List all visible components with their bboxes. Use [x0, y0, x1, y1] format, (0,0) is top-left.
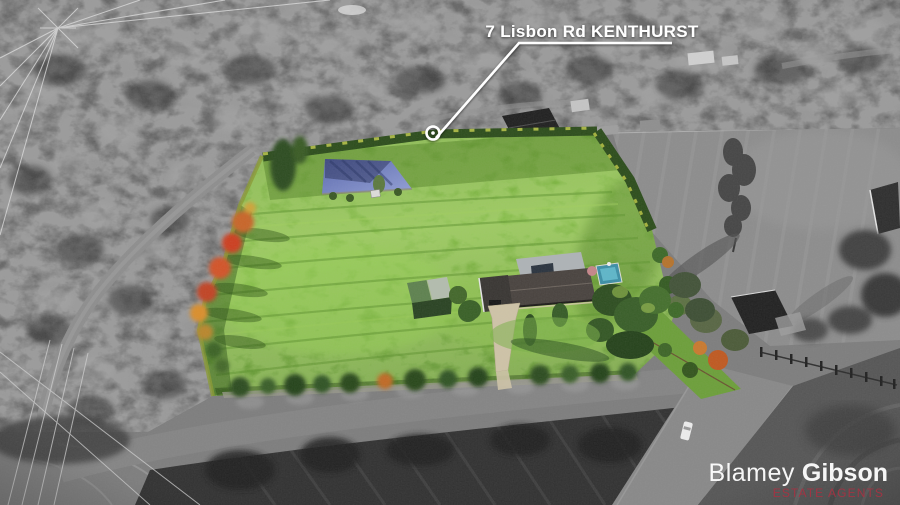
aerial-photo-canvas: 7 Lisbon Rd KENTHURST BlameyGibson ESTAT…	[0, 0, 900, 505]
agency-tagline: ESTATE AGENTS	[773, 486, 884, 500]
agency-name-last: Gibson	[802, 459, 888, 487]
address-label: 7 Lisbon Rd KENTHURST	[485, 22, 698, 41]
agency-name-first: Blamey	[709, 459, 795, 487]
aerial-photo: 7 Lisbon Rd KENTHURST BlameyGibson ESTAT…	[0, 0, 900, 505]
vignette	[0, 0, 900, 505]
